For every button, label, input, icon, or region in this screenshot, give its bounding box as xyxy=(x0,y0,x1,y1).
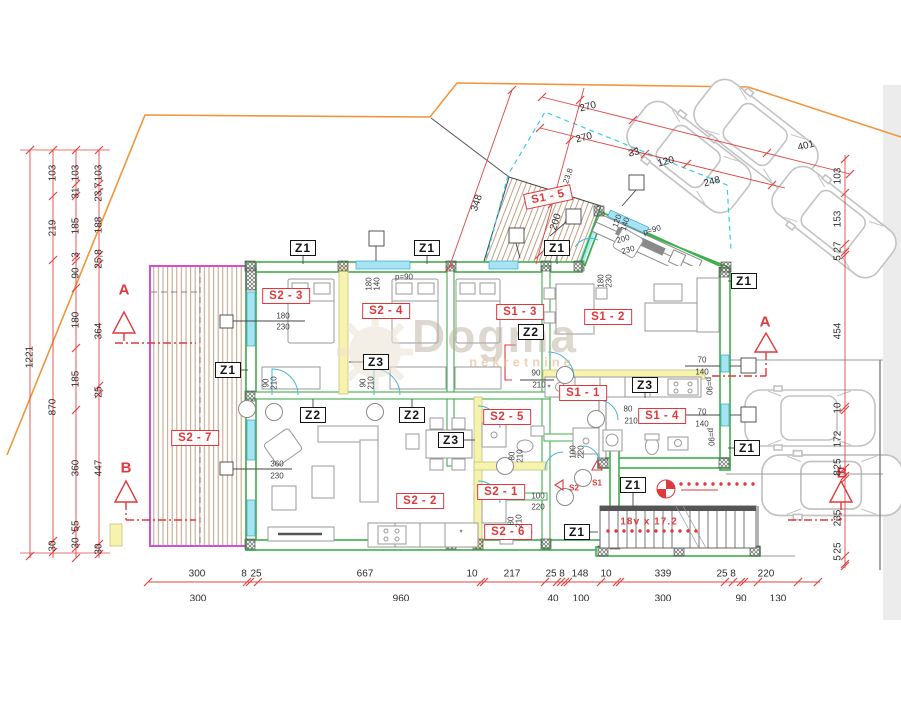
scan-edge-band xyxy=(883,85,901,620)
floorplan-page: Dogma nekretnine 18v x 17.2 S2 - 3S2 - 4… xyxy=(0,0,901,724)
stairs xyxy=(600,506,758,548)
terrace-s2-7 xyxy=(150,266,250,546)
watermark-sub: nekretnine xyxy=(469,355,575,370)
watermark-logo xyxy=(337,314,413,390)
crop-cover xyxy=(0,601,883,724)
